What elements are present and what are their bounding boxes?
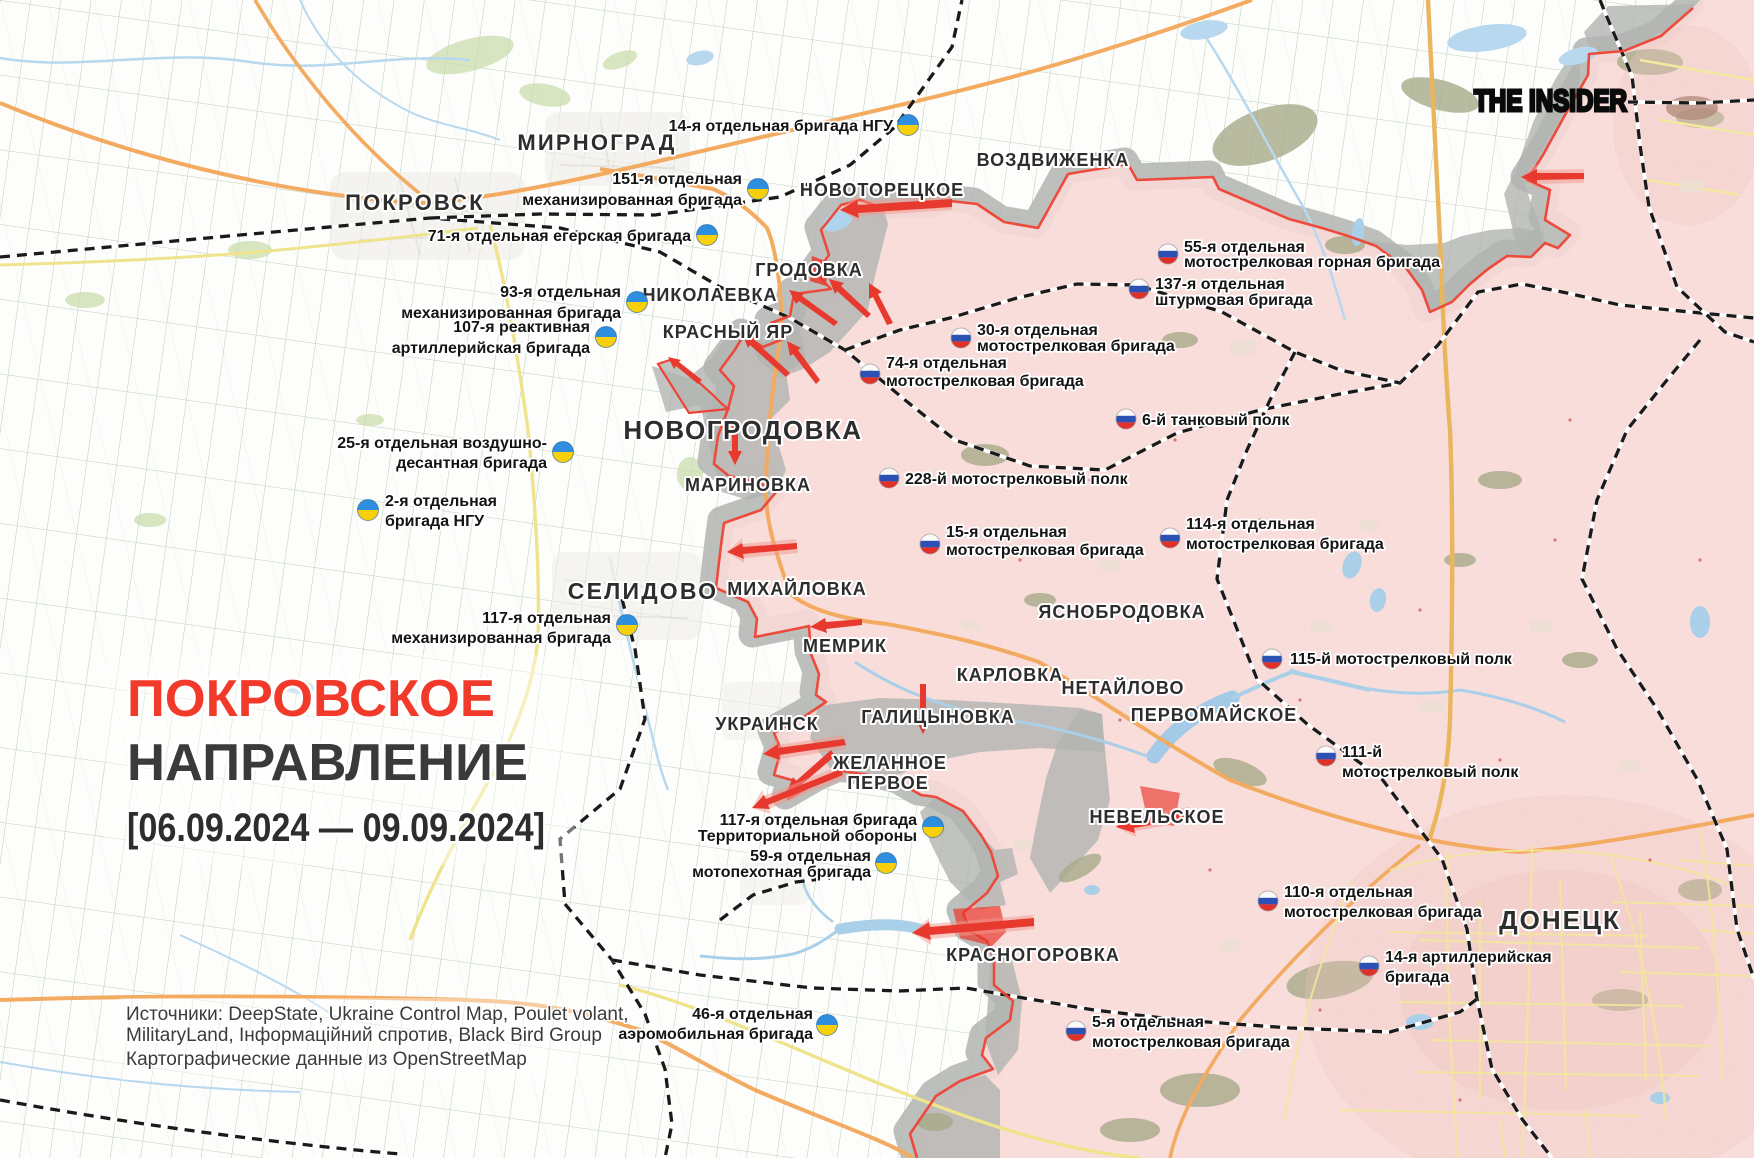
- svg-text:мотострелковая бригада: мотострелковая бригада: [1092, 1034, 1290, 1051]
- svg-text:6-й танковый полк: 6-й танковый полк: [1142, 412, 1290, 429]
- svg-text:5-я отдельная: 5-я отдельная: [1092, 1014, 1204, 1031]
- svg-text:14-я артиллерийская: 14-я артиллерийская: [1385, 949, 1552, 966]
- svg-text:НОВОТОРЕЦКОЕ: НОВОТОРЕЦКОЕ: [800, 180, 964, 200]
- svg-text:мотострелковая бригада: мотострелковая бригада: [977, 338, 1175, 355]
- svg-text:артиллерийская бригада: артиллерийская бригада: [392, 340, 590, 357]
- svg-text:30-я отдельная: 30-я отдельная: [977, 322, 1098, 339]
- svg-text:КРАСНЫЙ ЯР: КРАСНЫЙ ЯР: [663, 321, 793, 342]
- svg-text:КАРЛОВКА: КАРЛОВКА: [957, 665, 1063, 685]
- svg-text:десантная бригада: десантная бригада: [396, 455, 547, 472]
- svg-text:НАПРАВЛЕНИЕ: НАПРАВЛЕНИЕ: [127, 734, 528, 792]
- svg-text:Источники: DeepState, Ukraine: Источники: DeepState, Ukraine Control Ma…: [126, 1004, 629, 1025]
- svg-text:мотострелковая бригада: мотострелковая бригада: [946, 542, 1144, 559]
- svg-text:мотострелковый полк: мотострелковый полк: [1342, 764, 1519, 781]
- svg-text:мотопехотная бригада: мотопехотная бригада: [692, 864, 871, 881]
- svg-text:ПОКРОВСКОЕ: ПОКРОВСКОЕ: [127, 670, 495, 728]
- svg-text:НИКОЛАЕВКА: НИКОЛАЕВКА: [642, 285, 777, 305]
- svg-text:151-я отдельная: 151-я отдельная: [612, 171, 742, 188]
- svg-text:мотострелковая бригада: мотострелковая бригада: [1186, 536, 1384, 553]
- svg-text:штурмовая бригада: штурмовая бригада: [1155, 292, 1313, 309]
- svg-text:15-я отдельная: 15-я отдельная: [946, 524, 1067, 541]
- svg-text:228-й мотострелковый полк: 228-й мотострелковый полк: [905, 471, 1129, 488]
- svg-text:Картографические данные из Ope: Картографические данные из OpenStreetMap: [126, 1049, 527, 1070]
- svg-text:МЕМРИК: МЕМРИК: [803, 636, 887, 656]
- svg-text:МИРНОГРАД: МИРНОГРАД: [517, 130, 676, 155]
- svg-text:25-я отдельная воздушно-: 25-я отдельная воздушно-: [337, 435, 547, 452]
- svg-text:[06.09.2024 — 09.09.2024]: [06.09.2024 — 09.09.2024]: [127, 806, 545, 850]
- svg-text:механизированная бригада: механизированная бригада: [522, 192, 742, 209]
- svg-text:111-й: 111-й: [1342, 744, 1382, 761]
- svg-text:71-я отдельная егерская бригад: 71-я отдельная егерская бригада: [428, 228, 691, 245]
- svg-text:ГАЛИЦЫНОВКА: ГАЛИЦЫНОВКА: [861, 707, 1015, 727]
- svg-text:бригада НГУ: бригада НГУ: [385, 513, 485, 530]
- svg-text:2-я отдельная: 2-я отдельная: [385, 493, 497, 510]
- svg-text:ВОЗДВИЖЕНКА: ВОЗДВИЖЕНКА: [977, 150, 1130, 170]
- svg-text:мотострелковая бригада: мотострелковая бригада: [1284, 904, 1482, 921]
- svg-text:74-я отдельная: 74-я отдельная: [886, 355, 1007, 372]
- svg-text:МАРИНОВКА: МАРИНОВКА: [685, 475, 811, 495]
- svg-text:14-я отдельная бригада НГУ: 14-я отдельная бригада НГУ: [669, 118, 894, 135]
- svg-text:46-я отдельная: 46-я отдельная: [692, 1006, 813, 1023]
- svg-text:НЕВЕЛЬСКОЕ: НЕВЕЛЬСКОЕ: [1089, 807, 1224, 827]
- svg-text:НОВОГРОДОВКА: НОВОГРОДОВКА: [623, 415, 862, 445]
- svg-text:механизированная бригада: механизированная бригада: [391, 630, 611, 647]
- svg-text:КРАСНОГОРОВКА: КРАСНОГОРОВКА: [946, 945, 1120, 965]
- svg-text:бригада: бригада: [1385, 969, 1449, 986]
- svg-text:ПЕРВОМАЙСКОЕ: ПЕРВОМАЙСКОЕ: [1131, 704, 1297, 725]
- svg-text:аэромобильная бригада: аэромобильная бригада: [618, 1026, 813, 1043]
- svg-text:59-я отдельная: 59-я отдельная: [750, 848, 871, 865]
- svg-text:117-я отдельная: 117-я отдельная: [482, 610, 611, 627]
- svg-text:137-я отдельная: 137-я отдельная: [1155, 276, 1285, 293]
- svg-text:107-я реактивная: 107-я реактивная: [453, 319, 590, 336]
- svg-text:мотострелковая бригада: мотострелковая бригада: [886, 373, 1084, 390]
- svg-text:93-я отдельная: 93-я отдельная: [500, 284, 621, 301]
- svg-text:ГРОДОВКА: ГРОДОВКА: [755, 260, 863, 280]
- svg-text:ЯСНОБРОДОВКА: ЯСНОБРОДОВКА: [1038, 602, 1205, 622]
- svg-text:114-я отдельная: 114-я отдельная: [1186, 516, 1315, 533]
- svg-text:МИХАЙЛОВКА: МИХАЙЛОВКА: [727, 578, 867, 599]
- svg-text:115-й мотострелковый полк: 115-й мотострелковый полк: [1290, 651, 1513, 668]
- svg-text:ПЕРВОЕ: ПЕРВОЕ: [847, 773, 929, 793]
- svg-text:Территориальной обороны: Территориальной обороны: [698, 828, 917, 845]
- svg-text:ДОНЕЦК: ДОНЕЦК: [1499, 905, 1621, 935]
- svg-text:УКРАИНСК: УКРАИНСК: [715, 714, 819, 734]
- svg-text:MilitaryLand, Інформаційний сп: MilitaryLand, Інформаційний спротив, Bla…: [126, 1025, 602, 1046]
- svg-text:ПОКРОВСК: ПОКРОВСК: [345, 190, 485, 215]
- svg-text:117-я отдельная бригада: 117-я отдельная бригада: [720, 812, 918, 829]
- svg-text:СЕЛИДОВО: СЕЛИДОВО: [568, 578, 718, 604]
- svg-text:ЖЕЛАННОЕ: ЖЕЛАННОЕ: [832, 753, 947, 773]
- svg-text:THE INSIDER: THE INSIDER: [1474, 83, 1627, 118]
- svg-text:мотострелковая горная бригада: мотострелковая горная бригада: [1184, 254, 1440, 271]
- svg-text:НЕТАЙЛОВО: НЕТАЙЛОВО: [1062, 677, 1185, 698]
- svg-text:110-я отдельная: 110-я отдельная: [1284, 884, 1413, 901]
